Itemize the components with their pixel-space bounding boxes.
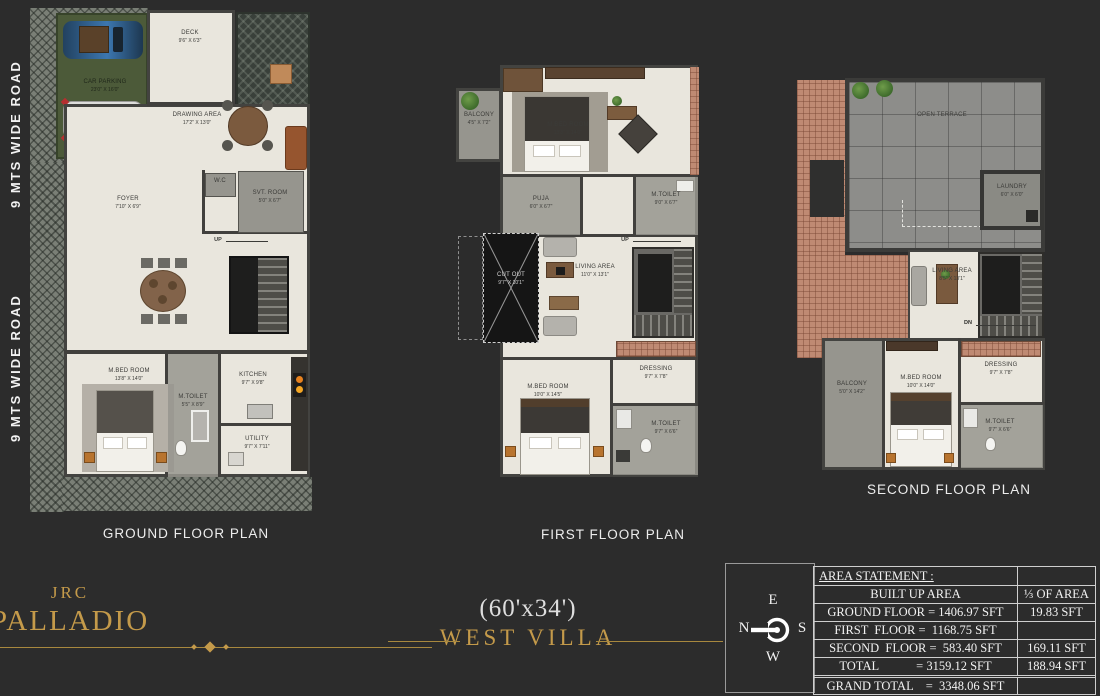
round-table bbox=[228, 106, 268, 146]
first-living-dims: 11'0" X 13'1" bbox=[575, 272, 615, 279]
room-label-cutout: CUT OUT 9'7" X 10'1" bbox=[497, 272, 525, 286]
side-table bbox=[944, 453, 954, 463]
table-row: GROUND FLOOR = 1406.97 SFT 19.83 SFT bbox=[814, 603, 1095, 621]
foyer-dims: 7'10" X 6'9" bbox=[115, 204, 140, 211]
dressing-wardrobe bbox=[961, 341, 1041, 357]
second-living-name: LIVING AREA bbox=[932, 268, 972, 276]
first-mtoilet-top-name: M.TOILET bbox=[651, 192, 680, 200]
room-label-first-mtoilet-bottom: M.TOILET 9'7" X 6'6" bbox=[651, 421, 680, 435]
second-plan-title: SECOND FLOOR PLAN bbox=[867, 482, 1031, 497]
one-third-area-header: ⅓ OF AREA bbox=[1018, 586, 1095, 603]
car-blue-windshield bbox=[113, 27, 123, 52]
bed-blanket bbox=[521, 407, 589, 433]
table-cell bbox=[1018, 567, 1095, 585]
side-table bbox=[84, 452, 95, 463]
grand-total-extra bbox=[1018, 678, 1095, 694]
room-label-car-parking: CAR PARKING 23'0" X 16'0" bbox=[83, 79, 126, 93]
laundry-name: LAUNDRY bbox=[997, 184, 1027, 192]
table-row: AREA STATEMENT : bbox=[814, 567, 1095, 585]
terrace-name: OPEN TERRACE bbox=[917, 112, 967, 120]
dining-table bbox=[140, 270, 186, 312]
stair-treads bbox=[980, 316, 1042, 336]
stair-treads bbox=[634, 315, 692, 336]
second-dressing-dims: 9'7" X 7'8" bbox=[985, 370, 1018, 377]
first-dressing-name: DRESSING bbox=[640, 366, 673, 374]
second-living-dims: 8'5" X 13'1" bbox=[932, 276, 972, 283]
cutout-name: CUT OUT bbox=[497, 272, 525, 280]
toilet bbox=[640, 438, 652, 453]
first-mbed-top-name: M.BED ROOM bbox=[547, 122, 588, 130]
dining-chair bbox=[141, 258, 153, 268]
kitchen-dims: 9'7" X 9'8" bbox=[239, 380, 267, 387]
compass: E N S W bbox=[725, 563, 815, 693]
cutout-dims: 9'7" X 10'1" bbox=[497, 280, 525, 287]
wall bbox=[218, 354, 221, 477]
sofa bbox=[543, 316, 577, 336]
plant bbox=[852, 82, 869, 99]
ground-mtoilet-name: M.TOILET bbox=[178, 394, 207, 402]
total-extra: 188.94 SFT bbox=[1018, 658, 1095, 675]
second-mbed-dims: 10'0" X 14'0" bbox=[900, 383, 941, 390]
foyer-name: FOYER bbox=[115, 196, 140, 204]
pillow bbox=[103, 437, 123, 449]
road-label-bottom: 9 MTS WIDE ROAD bbox=[8, 292, 23, 442]
dining-chair bbox=[141, 314, 153, 324]
first-floor-extra bbox=[1018, 622, 1095, 639]
road-texture-bottom bbox=[62, 477, 312, 511]
second-mbed-name: M.BED ROOM bbox=[900, 375, 941, 383]
compass-east: E bbox=[768, 592, 777, 609]
open-cutout-zone bbox=[458, 236, 483, 340]
table-row: FIRST FLOOR = 1168.75 SFT bbox=[814, 621, 1095, 639]
divider-ornament bbox=[204, 641, 215, 652]
side-table bbox=[505, 446, 516, 457]
kitchen-name: KITCHEN bbox=[239, 372, 267, 380]
first-balcony-dims: 4'5" X 7'2" bbox=[464, 120, 494, 127]
ground-mbed-name: M.BED ROOM bbox=[108, 368, 149, 376]
car-blue bbox=[63, 21, 143, 59]
room-label-ground-mtoilet: M.TOILET 5'5" X 8'9" bbox=[178, 394, 207, 408]
bed bbox=[890, 392, 952, 467]
garden-bench bbox=[270, 64, 292, 84]
second-mtoilet-dims: 9'7" X 6'6" bbox=[985, 427, 1014, 434]
plant bbox=[612, 96, 622, 106]
room-label-laundry: LAUNDRY 6'0" X 6'0" bbox=[997, 184, 1027, 198]
room-label-first-balcony: BALCONY 4'5" X 7'2" bbox=[464, 112, 494, 126]
room-label-second-mbed: M.BED ROOM 10'0" X 14'0" bbox=[900, 375, 941, 389]
dining-chair bbox=[158, 314, 170, 324]
room-label-open-terrace: OPEN TERRACE bbox=[917, 112, 967, 120]
room-label-deck: DECK 9'6" X 6'3" bbox=[179, 30, 202, 44]
washbasin bbox=[676, 180, 694, 192]
second-balcony-name: BALCONY bbox=[837, 381, 867, 389]
table-row-grand-total: GRAND TOTAL = 3348.06 SFT bbox=[814, 675, 1095, 694]
stair-arrow-ground bbox=[226, 241, 268, 242]
pillow bbox=[533, 145, 555, 157]
table-row: SECOND FLOOR = 583.40 SFT 169.11 SFT bbox=[814, 639, 1095, 657]
dining-chair bbox=[158, 258, 170, 268]
tv-console bbox=[546, 262, 574, 278]
brick-wall-strip bbox=[690, 67, 699, 175]
villa-line-left bbox=[388, 641, 460, 642]
side-table bbox=[886, 453, 896, 463]
path-dashed bbox=[902, 200, 903, 227]
up-label-first: UP bbox=[621, 237, 629, 243]
floor-plan-poster: 9 MTS WIDE ROAD 9 MTS WIDE ROAD CAR PARK… bbox=[0, 0, 1100, 696]
pillow bbox=[897, 429, 918, 440]
room-label-first-mbed-bottom: M.BED ROOM 10'0" X 14'5" bbox=[527, 384, 568, 398]
road-label-top: 9 MTS WIDE ROAD bbox=[8, 58, 23, 208]
toilet bbox=[985, 437, 996, 451]
divider-ornament bbox=[223, 644, 229, 650]
burner bbox=[296, 386, 303, 393]
first-mbed-top-dims: 13'8" X 14'0" bbox=[547, 130, 588, 137]
room-label-second-dressing: DRESSING 9'7" X 7'8" bbox=[985, 362, 1018, 376]
stair-core bbox=[638, 254, 672, 312]
area-statement-title: AREA STATEMENT : bbox=[814, 567, 1018, 585]
room-label-first-dressing: DRESSING 9'7" X 7'8" bbox=[640, 366, 673, 380]
first-mtoilet-bottom-name: M.TOILET bbox=[651, 421, 680, 429]
ground-mtoilet-dims: 5'5" X 8'9" bbox=[178, 402, 207, 409]
dining-chair bbox=[175, 258, 187, 268]
stair-arrow-first bbox=[633, 241, 681, 242]
compass-south: S bbox=[798, 620, 806, 637]
side-table bbox=[156, 452, 167, 463]
stair-arrow-second bbox=[976, 325, 1036, 326]
first-plan-title: FIRST FLOOR PLAN bbox=[541, 527, 685, 542]
second-floor-area: SECOND FLOOR = 583.40 SFT bbox=[814, 640, 1018, 657]
chair bbox=[262, 100, 273, 111]
deck-dims: 9'6" X 6'3" bbox=[179, 38, 202, 45]
car-parking-dims: 23'0" X 16'0" bbox=[83, 87, 126, 94]
first-floor-area: FIRST FLOOR = 1168.75 SFT bbox=[814, 622, 1018, 639]
bath-mat bbox=[616, 450, 630, 462]
deck-room bbox=[147, 10, 235, 106]
desk bbox=[503, 68, 543, 92]
wall bbox=[882, 338, 885, 470]
ground-floor-area: GROUND FLOOR = 1406.97 SFT bbox=[814, 604, 1018, 621]
cutout-x-lines bbox=[484, 234, 538, 342]
room-label-servant-room: SVT. ROOM 5'0" X 6'7" bbox=[253, 190, 288, 204]
pillow bbox=[559, 145, 581, 157]
chair bbox=[222, 140, 233, 151]
room-label-second-living: LIVING AREA 8'5" X 13'1" bbox=[932, 268, 972, 282]
headboard bbox=[521, 399, 589, 407]
room-label-first-living: LIVING AREA 11'0" X 13'1" bbox=[575, 264, 615, 278]
first-mtoilet-bottom-dims: 9'7" X 6'6" bbox=[651, 429, 680, 436]
washbasin bbox=[963, 408, 978, 428]
washing-machine bbox=[228, 452, 244, 466]
ground-mbed-dims: 13'8" X 14'0" bbox=[108, 376, 149, 383]
cutout bbox=[483, 233, 539, 343]
stair-treads bbox=[674, 249, 692, 313]
room-label-ground-mbed: M.BED ROOM 13'8" X 14'0" bbox=[108, 368, 149, 382]
laptop bbox=[556, 267, 565, 275]
stairs-ground bbox=[229, 256, 289, 334]
plot-size: (60'x34') bbox=[479, 595, 576, 623]
laundry-dims: 6'0" X 6'0" bbox=[997, 192, 1027, 199]
compass-needle-icon bbox=[750, 615, 794, 645]
svt-dims: 5'0" X 6'7" bbox=[253, 198, 288, 205]
room-label-foyer: FOYER 7'10" X 6'9" bbox=[115, 196, 140, 210]
ground-floor-extra: 19.83 SFT bbox=[1018, 604, 1095, 621]
pillow bbox=[923, 429, 944, 440]
bowl bbox=[168, 281, 177, 290]
villa-name: WEST VILLA bbox=[440, 625, 617, 651]
first-living-name: LIVING AREA bbox=[575, 264, 615, 272]
total-area: TOTAL = 3159.12 SFT bbox=[814, 658, 1018, 675]
ground-plan-title: GROUND FLOOR PLAN bbox=[103, 526, 269, 541]
first-mtoilet-top-dims: 9'0" X 6'7" bbox=[651, 200, 680, 207]
kitchen-counter bbox=[291, 357, 308, 471]
area-statement-table: AREA STATEMENT : BUILT UP AREA ⅓ OF AREA… bbox=[813, 566, 1096, 695]
chair bbox=[222, 100, 233, 111]
bowl bbox=[149, 279, 158, 288]
dining-chair bbox=[175, 314, 187, 324]
car-parking-name: CAR PARKING bbox=[83, 79, 126, 87]
drawing-dims: 17'2" X 13'0" bbox=[173, 120, 222, 127]
bed bbox=[520, 398, 590, 475]
gold-divider bbox=[0, 647, 432, 648]
sink bbox=[247, 404, 273, 419]
second-mtoilet-name: M.TOILET bbox=[985, 419, 1014, 427]
deck-name: DECK bbox=[179, 30, 202, 38]
sofa bbox=[543, 237, 577, 257]
room-label-second-balcony: BALCONY 5'0" X 14'2" bbox=[837, 381, 867, 395]
second-floor-extra: 169.11 SFT bbox=[1018, 640, 1095, 657]
utility-dims: 9'7" X 7'11" bbox=[244, 444, 269, 451]
drawing-name: DRAWING AREA bbox=[173, 112, 222, 120]
svt-name: SVT. ROOM bbox=[253, 190, 288, 198]
laundry-room bbox=[980, 170, 1044, 230]
stair-treads bbox=[1022, 254, 1042, 314]
compass-west: W bbox=[766, 649, 780, 666]
puja-dims: 6'0" X 6'7" bbox=[530, 204, 553, 211]
pillow bbox=[558, 437, 581, 449]
stair-core bbox=[982, 256, 1020, 314]
up-label-ground: UP bbox=[214, 237, 222, 243]
second-balcony-dims: 5'0" X 14'2" bbox=[837, 389, 867, 396]
first-dressing-dims: 9'7" X 7'8" bbox=[640, 374, 673, 381]
room-label-first-mtoilet-top: M.TOILET 9'0" X 6'7" bbox=[651, 192, 680, 206]
chair bbox=[262, 140, 273, 151]
wall bbox=[500, 357, 698, 360]
built-up-area-header: BUILT UP AREA bbox=[814, 586, 1018, 603]
car-blue-cabin bbox=[79, 26, 109, 53]
grand-total-area: GRAND TOTAL = 3348.06 SFT bbox=[814, 678, 1018, 694]
dn-label: DN bbox=[964, 320, 972, 326]
wall bbox=[580, 177, 583, 235]
room-label-puja: PUJA 6'0" X 6'7" bbox=[530, 196, 553, 210]
second-dressing-name: DRESSING bbox=[985, 362, 1018, 370]
second-balcony bbox=[825, 341, 882, 467]
bed bbox=[96, 390, 154, 472]
room-label-utility: UTILITY 9'7" X 7'11" bbox=[244, 436, 269, 450]
headboard bbox=[891, 393, 951, 401]
plant bbox=[876, 80, 893, 97]
wardrobe bbox=[886, 341, 938, 351]
room-label-first-mbed-top: M.BED ROOM 13'8" X 14'0" bbox=[547, 122, 588, 136]
bed-blanket bbox=[891, 401, 951, 425]
room-label-kitchen: KITCHEN 9'7" X 9'8" bbox=[239, 372, 267, 386]
puja-name: PUJA bbox=[530, 196, 553, 204]
laundry-machine bbox=[1026, 210, 1038, 222]
plant bbox=[461, 92, 479, 110]
villa-line-right bbox=[596, 641, 723, 642]
side-table bbox=[593, 446, 604, 457]
pillow bbox=[529, 437, 552, 449]
compass-north: N bbox=[739, 620, 750, 637]
sofa bbox=[285, 126, 307, 170]
roof-notch bbox=[810, 160, 844, 217]
first-mbed-bottom-name: M.BED ROOM bbox=[527, 384, 568, 392]
wc-name: W.C bbox=[214, 178, 226, 186]
washbasin bbox=[616, 409, 632, 429]
table-row: BUILT UP AREA ⅓ OF AREA bbox=[814, 585, 1095, 603]
bench bbox=[549, 296, 579, 310]
stairs-first bbox=[632, 247, 694, 338]
toilet bbox=[175, 440, 187, 456]
room-label-second-mtoilet: M.TOILET 9'7" X 6'6" bbox=[985, 419, 1014, 433]
divider-ornament bbox=[191, 644, 197, 650]
room-label-drawing-area: DRAWING AREA 17'2" X 13'0" bbox=[173, 112, 222, 126]
brand-jrc: JRC bbox=[51, 583, 89, 603]
bowl bbox=[158, 295, 167, 304]
burner bbox=[296, 376, 303, 383]
stove bbox=[293, 373, 306, 397]
sofa bbox=[911, 266, 927, 306]
path-dashed bbox=[902, 226, 982, 227]
first-balcony-name: BALCONY bbox=[464, 112, 494, 120]
brand-palladio: PALLADIO bbox=[0, 605, 149, 638]
pillow bbox=[127, 437, 147, 449]
shower bbox=[191, 410, 209, 442]
dressing-wardrobe bbox=[616, 341, 696, 357]
table-row: TOTAL = 3159.12 SFT 188.94 SFT bbox=[814, 657, 1095, 675]
bed-blanket bbox=[97, 391, 153, 433]
stair-treads bbox=[258, 258, 287, 332]
room-label-wc: W.C bbox=[214, 178, 226, 186]
utility-name: UTILITY bbox=[244, 436, 269, 444]
wardrobe bbox=[545, 67, 645, 79]
